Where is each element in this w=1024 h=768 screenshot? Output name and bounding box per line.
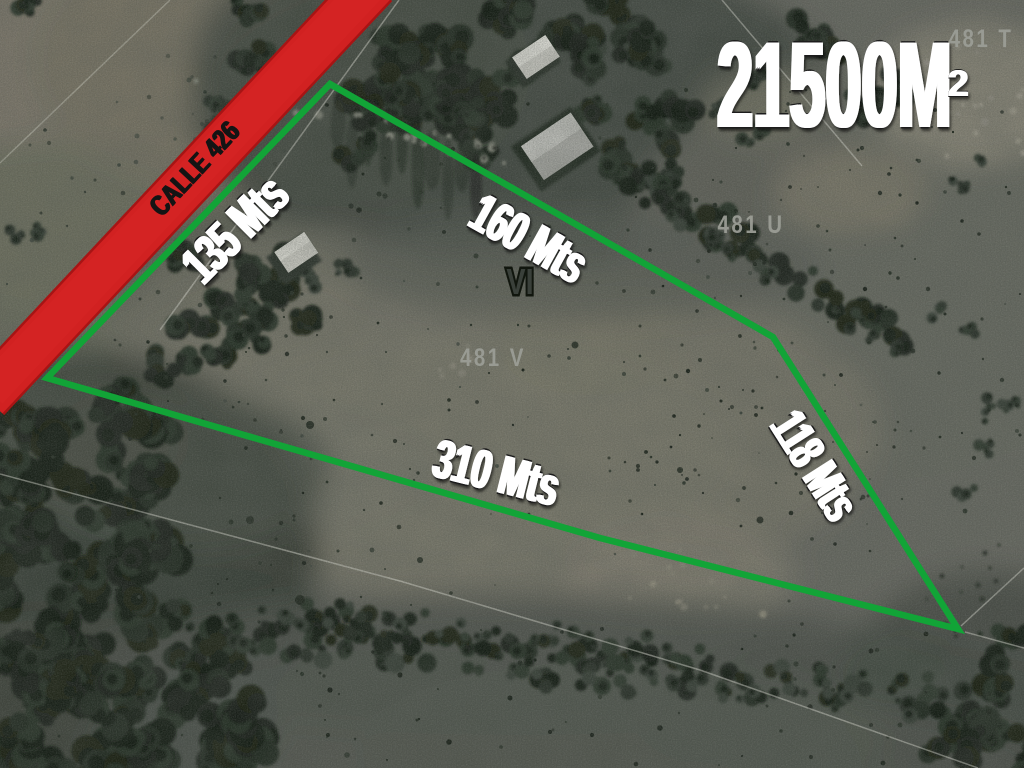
svg-text:481 U: 481 U xyxy=(717,210,784,238)
svg-text:481 V: 481 V xyxy=(460,343,526,371)
svg-text:2: 2 xyxy=(949,63,970,104)
svg-text:481 T: 481 T xyxy=(949,24,1014,52)
svg-text:21500M: 21500M xyxy=(719,16,954,154)
